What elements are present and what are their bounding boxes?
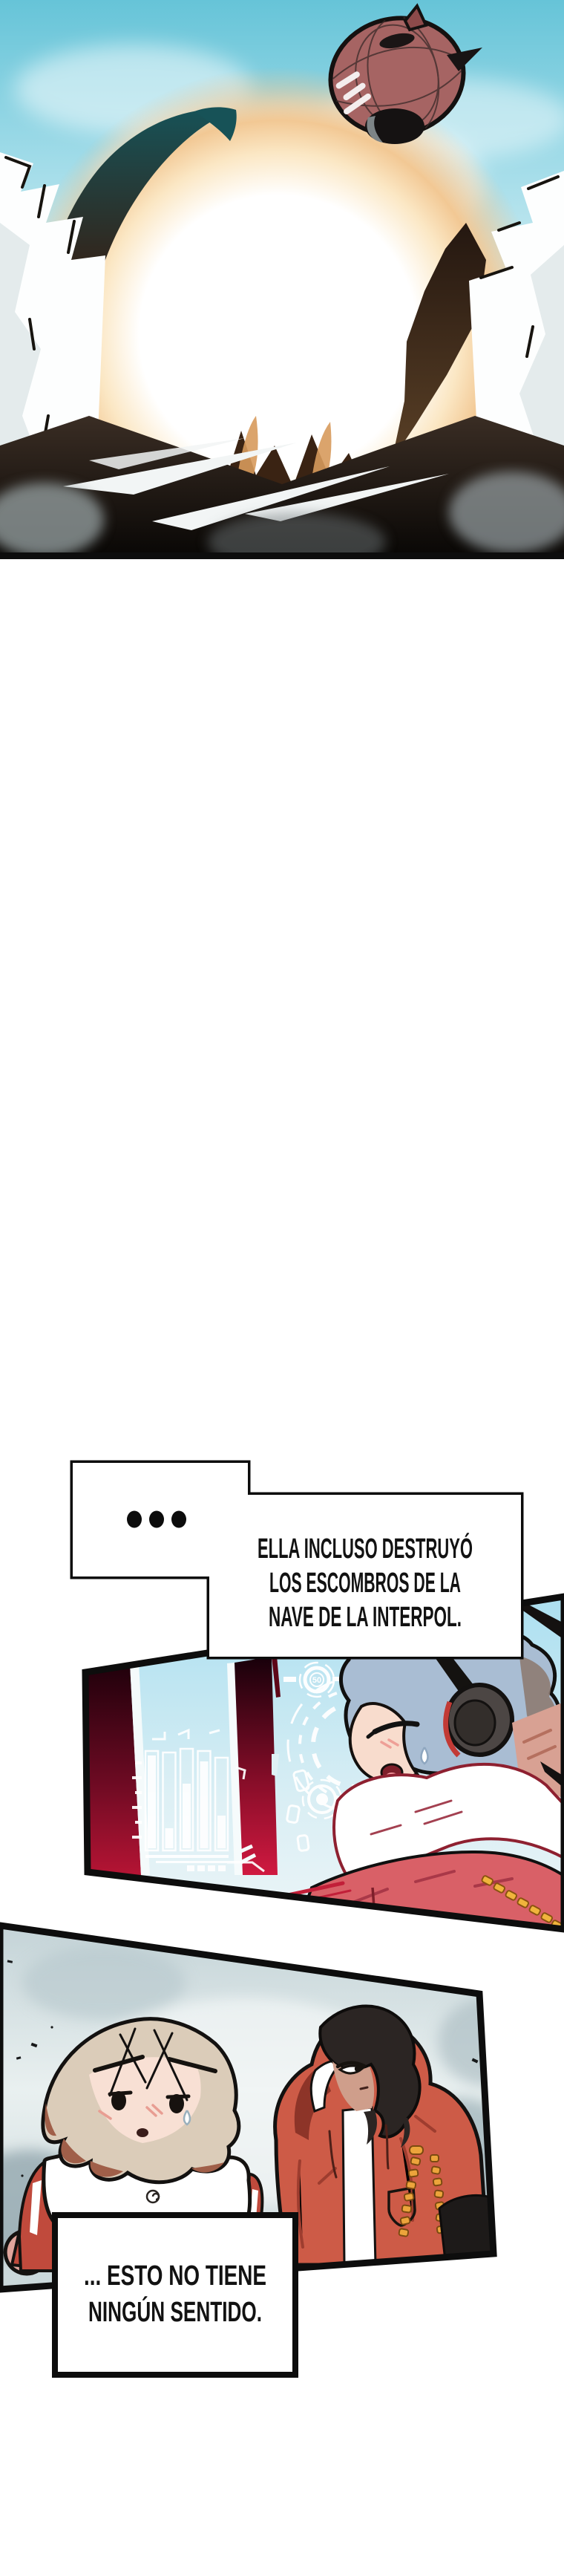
panel-sky-vortex — [0, 0, 564, 559]
panel-two-characters — [0, 1916, 564, 2302]
right-mouth — [361, 2087, 367, 2089]
headphone-earcup-inner — [455, 1701, 495, 1745]
sweat-drop — [422, 1747, 428, 1764]
left-red-pillar — [82, 1663, 150, 1875]
left-sweat-drop — [184, 2110, 190, 2125]
bubble1-line1: ELLA INCLUSO DESTRUYÓ — [258, 1532, 473, 1565]
left-mouth — [137, 2128, 148, 2137]
right-dark-arm — [439, 2195, 496, 2260]
panel1-bottom-border — [0, 552, 564, 559]
panel-cockpit: 50 — [0, 1589, 564, 1938]
ellipsis-dots-icon — [127, 1511, 186, 1528]
hud-gauge-value: 50 — [312, 1676, 321, 1685]
webtoon-page: 50 — [0, 0, 564, 2576]
airship-gondola — [365, 108, 424, 144]
